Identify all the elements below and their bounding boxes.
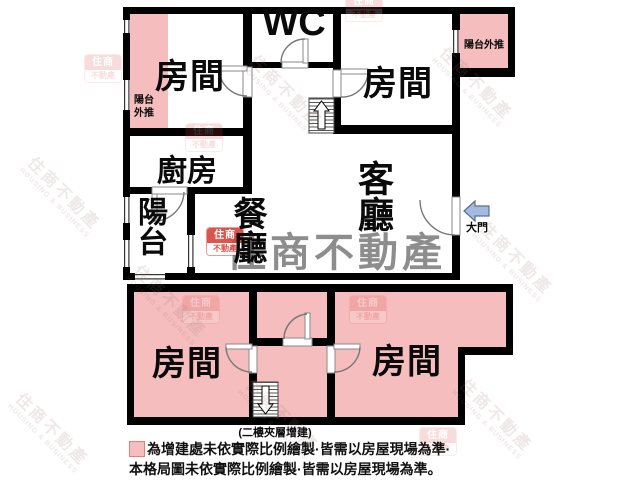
room-label-bedroom-bottom-left: 房間 [152, 336, 222, 385]
entry-arrow-icon [464, 201, 489, 221]
upper-outer-walls [123, 7, 515, 280]
room-label-bedroom-top-left: 房間 [155, 49, 225, 98]
stairs-up [309, 98, 334, 133]
floor-plan-drawing [0, 0, 640, 480]
room-label-living: 客廳 [355, 160, 391, 232]
room-label-bedroom-top-right: 房間 [363, 56, 433, 105]
legend-line-1: 為增建處未依實際比例繪製·皆需以房屋現場為準· [129, 439, 450, 459]
main-door-label: 大門 [466, 219, 488, 235]
addition-legend-swatch [129, 441, 145, 457]
legend-line-2: 本格局圖未依實際比例繪製·皆需以房屋現場為準。 [129, 459, 450, 479]
balcony-pushout-right-label: 陽台外推 [464, 39, 504, 52]
room-label-balcony: 陽台 [134, 196, 164, 256]
room-label-dining: 餐廳 [230, 196, 264, 264]
room-label-bedroom-bottom-right: 房間 [372, 334, 442, 383]
stairs-down [253, 382, 278, 417]
floor-plan-canvas: 住商不動產 住商 不動產 住商不動產 住商不動產 住商不動產 住商不動產 住商不… [0, 0, 640, 480]
mezzanine-caption: (二樓夾層增建) [238, 424, 311, 440]
balcony-pushout-left-label: 陽台 外推 [134, 94, 154, 120]
room-label-wc: WC [262, 2, 325, 45]
legend: 為增建處未依實際比例繪製·皆需以房屋現場為準· 本格局圖未依實際比例繪製·皆需以… [129, 439, 450, 479]
room-label-kitchen: 廚房 [157, 146, 217, 190]
